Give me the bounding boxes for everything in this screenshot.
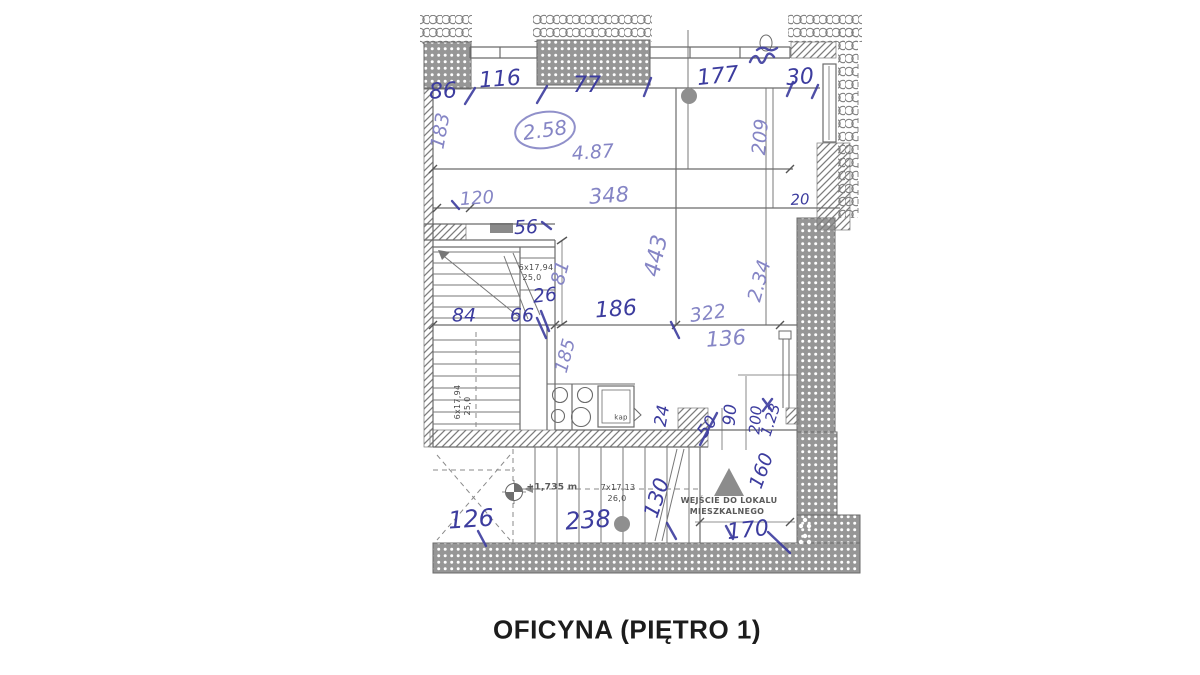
plan-caption: OFICYNA (PIĘTRO 1) [493, 615, 761, 646]
level-marker [506, 484, 523, 501]
fixtures [506, 88, 812, 544]
walls-hatched [424, 42, 850, 447]
room-number-circle [513, 108, 577, 152]
floorplan-drawing [0, 0, 1200, 675]
dim-ticks [429, 165, 794, 526]
plan-lines [424, 30, 840, 543]
floorplan-page: 86116771773020562684661862450902001.2316… [0, 0, 1200, 675]
stairs [433, 55, 858, 543]
column-dot-top [681, 88, 697, 104]
ink-ticks [452, 48, 818, 553]
column-dot-bottom [614, 516, 630, 532]
entrance-triangle [714, 468, 744, 496]
